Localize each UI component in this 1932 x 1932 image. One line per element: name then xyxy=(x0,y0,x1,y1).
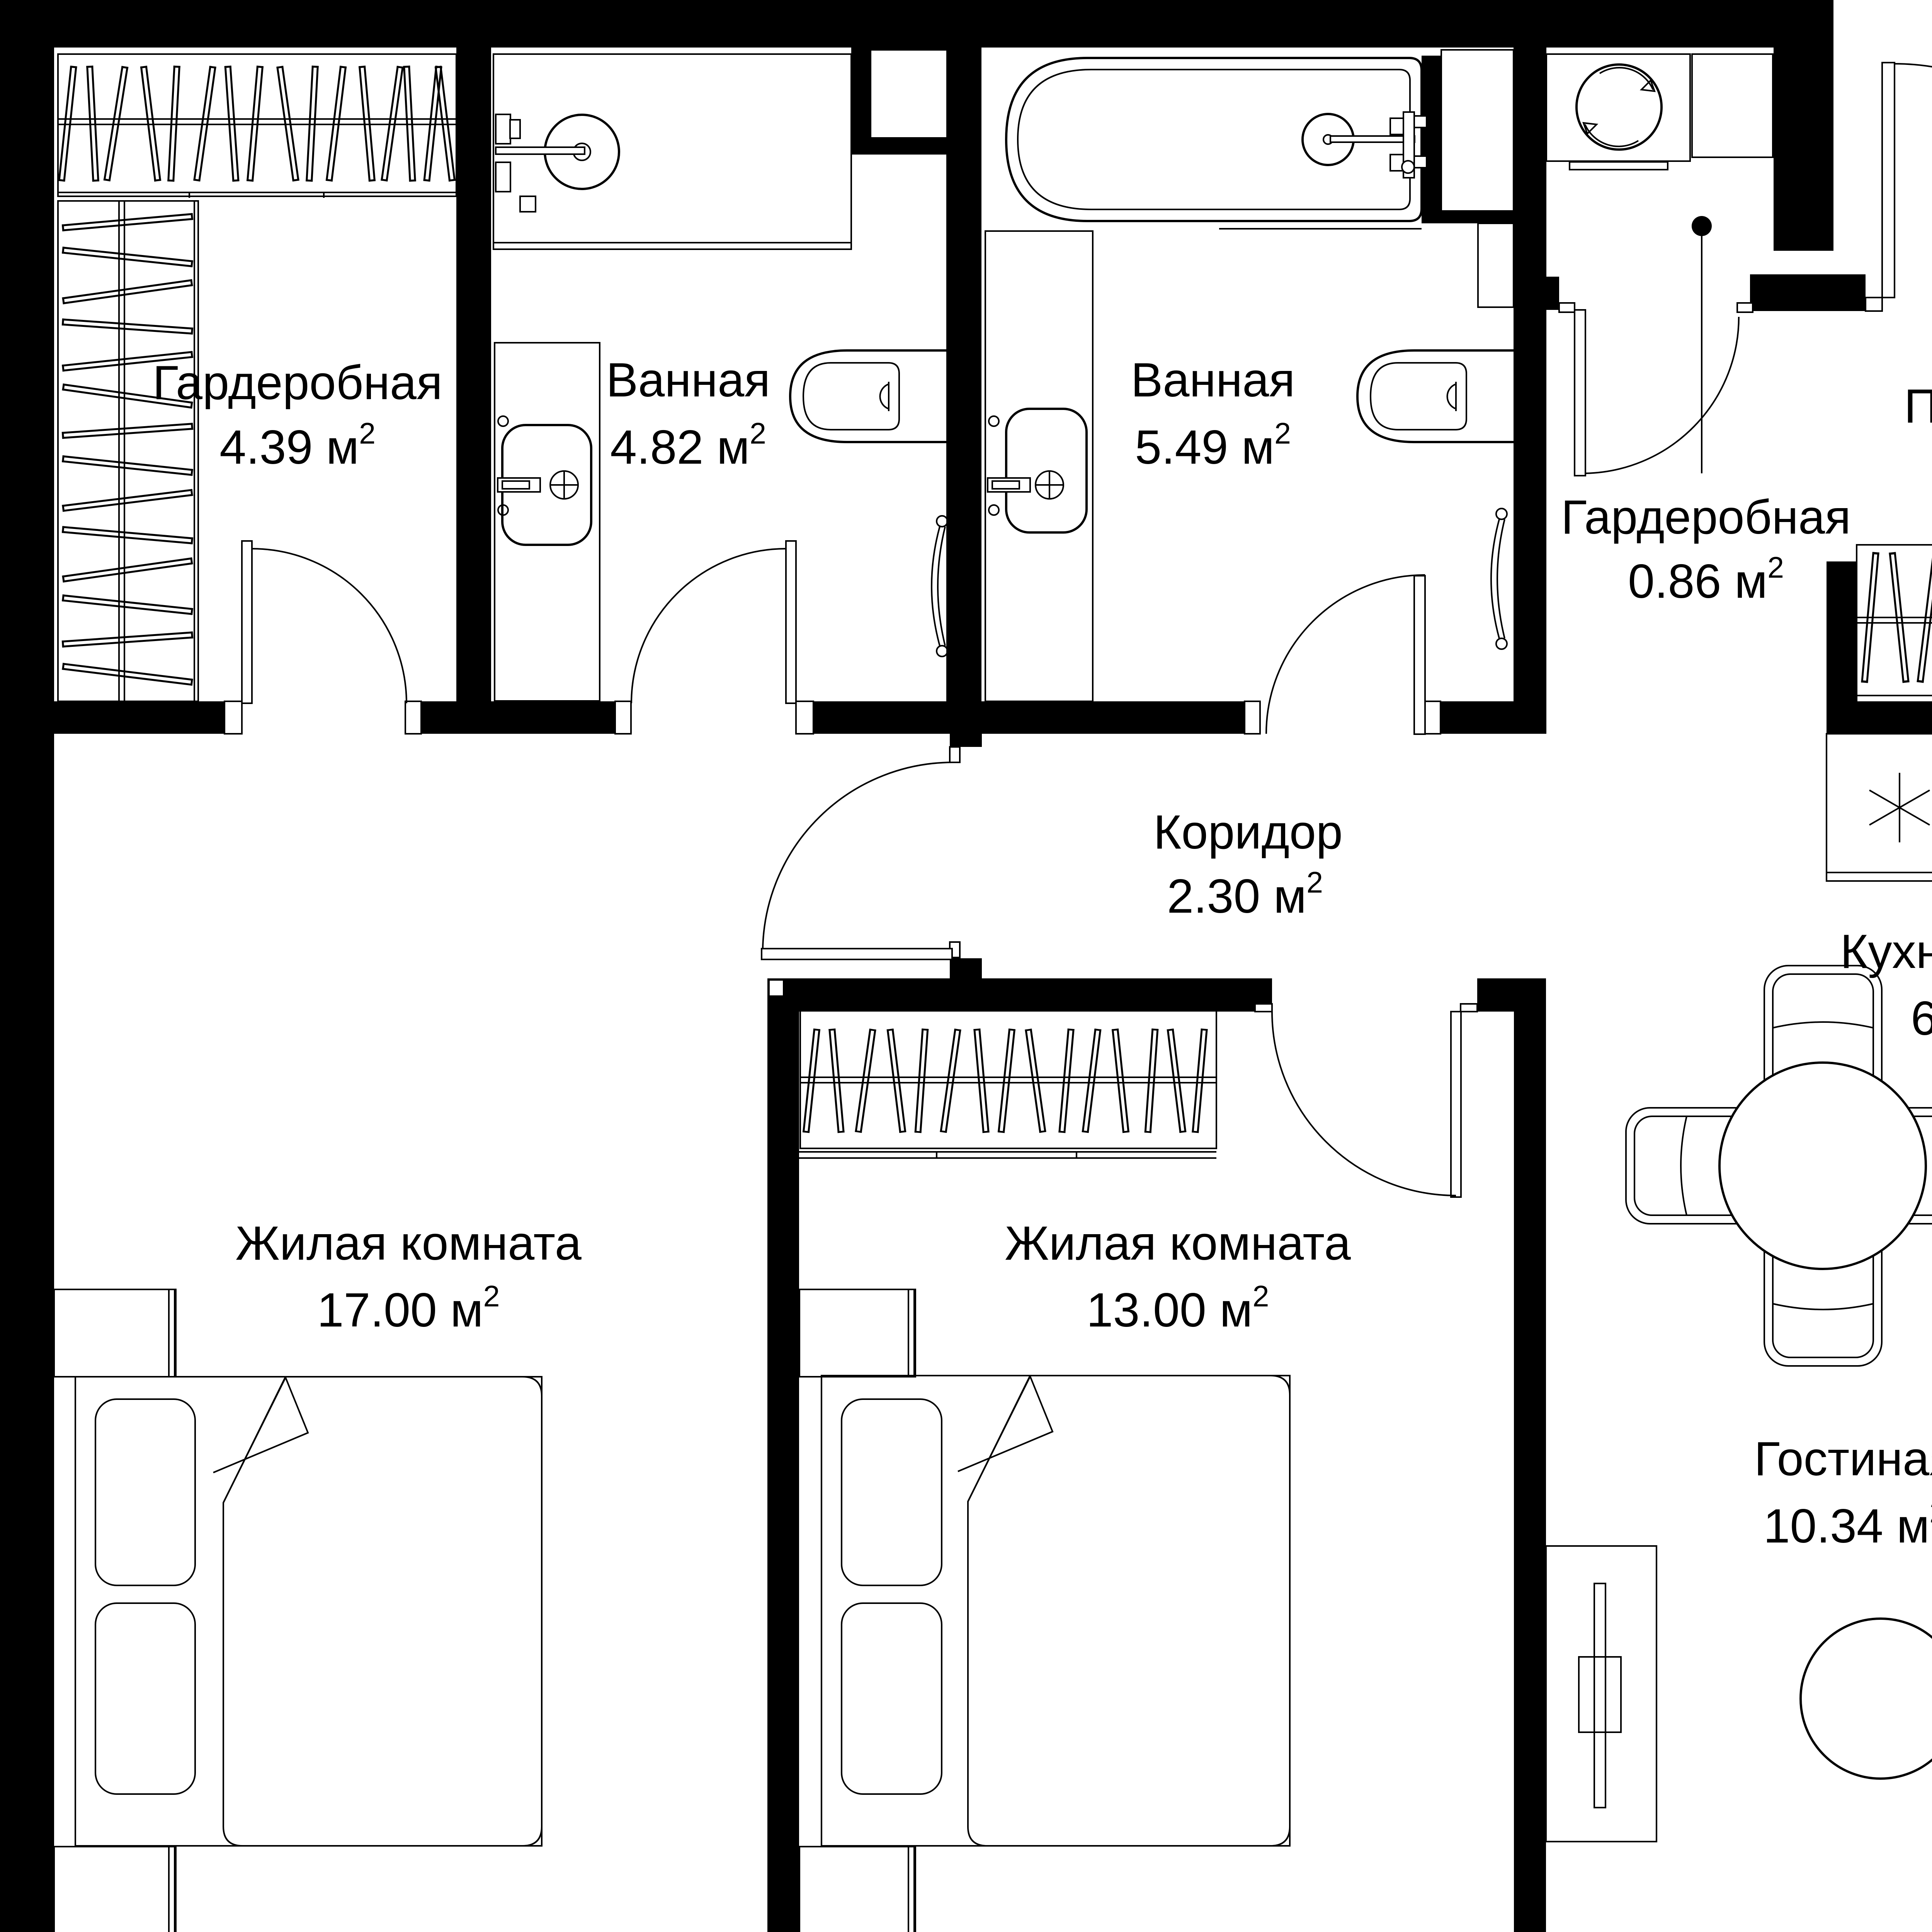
svg-text:4.82 м2: 4.82 м2 xyxy=(610,417,766,474)
svg-text:17.00 м2: 17.00 м2 xyxy=(317,1280,500,1337)
svg-text:Ванная: Ванная xyxy=(606,354,770,407)
svg-text:Гардеробная: Гардеробная xyxy=(153,356,442,410)
svg-text:10.34 м2: 10.34 м2 xyxy=(1764,1496,1932,1553)
svg-text:Жилая комната: Жилая комната xyxy=(1005,1217,1351,1270)
svg-text:5.49 м2: 5.49 м2 xyxy=(1135,417,1291,474)
svg-text:Гардеробная: Гардеробная xyxy=(1561,491,1851,544)
svg-text:Коридор: Коридор xyxy=(1153,806,1343,859)
svg-text:2.30 м2: 2.30 м2 xyxy=(1167,866,1323,923)
svg-text:Ванная: Ванная xyxy=(1131,354,1295,407)
svg-text:4.39 м2: 4.39 м2 xyxy=(219,417,376,474)
svg-text:Гостиная: Гостиная xyxy=(1754,1432,1932,1486)
svg-text:0.86 м2: 0.86 м2 xyxy=(1628,551,1784,608)
svg-text:13.00 м2: 13.00 м2 xyxy=(1087,1280,1269,1337)
svg-text:6.02 м2: 6.02 м2 xyxy=(1911,988,1932,1045)
svg-text:Прихожая: Прихожая xyxy=(1904,380,1932,433)
svg-text:Кухня-ниша: Кухня-ниша xyxy=(1840,925,1932,978)
svg-text:Жилая комната: Жилая комната xyxy=(235,1217,582,1270)
